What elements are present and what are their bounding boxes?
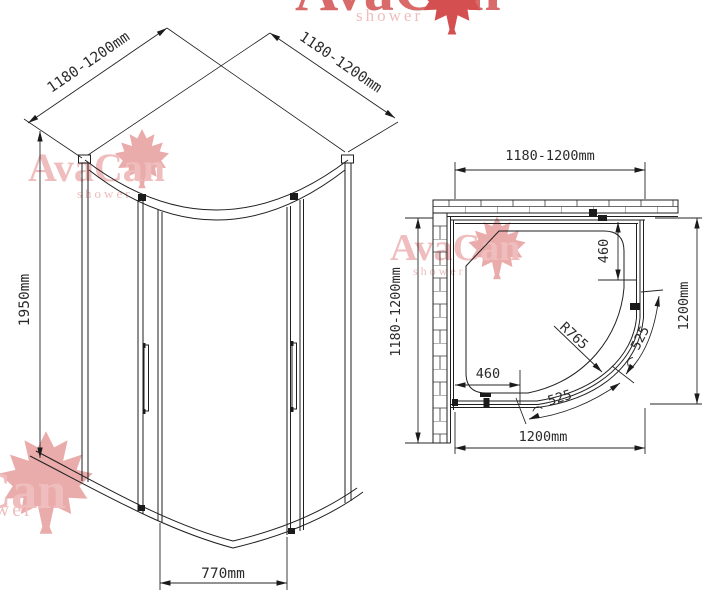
door-arc-inner bbox=[537, 318, 637, 401]
door-handle-right bbox=[291, 341, 297, 412]
dim-label: 525 bbox=[546, 387, 574, 409]
watermark-left-middle: AvaCan shower bbox=[28, 129, 169, 201]
dim-label: 460 bbox=[596, 239, 612, 263]
post-cap bbox=[342, 155, 354, 163]
roller-bracket bbox=[138, 194, 146, 201]
dim-label: 1180-1200mm bbox=[388, 267, 404, 356]
corner-fitting bbox=[452, 399, 458, 406]
isometric-view: 1180-1200mm 1180-1200mm 1950mm 770mm bbox=[17, 26, 398, 590]
dim-label: 770mm bbox=[201, 566, 245, 582]
panel-bracket bbox=[589, 209, 597, 216]
brand-watermark-text: AvaCan bbox=[28, 145, 165, 190]
dim-back-left-width: 1180-1200mm bbox=[26, 26, 168, 125]
dim-label: 1950mm bbox=[17, 274, 33, 327]
corner-posts bbox=[82, 163, 351, 503]
dim-plan-top-width: 1180-1200mm bbox=[455, 148, 645, 199]
brand-watermark-text: AvaCan bbox=[390, 227, 520, 269]
wall-top bbox=[433, 200, 678, 213]
dim-label: 460 bbox=[476, 366, 500, 382]
left-door-stiles bbox=[138, 200, 162, 523]
door-stop-bracket bbox=[630, 303, 640, 310]
right-door-stiles bbox=[287, 199, 304, 535]
fixed-panel-bottom bbox=[450, 401, 538, 408]
dim-label: 1180-1200mm bbox=[45, 29, 133, 97]
dim-door-opening: 770mm bbox=[160, 523, 287, 590]
dim-door-radius: R765 bbox=[554, 319, 604, 374]
arc-length-icon bbox=[532, 406, 542, 412]
dim-back-right-width: 1180-1200mm bbox=[268, 29, 396, 120]
watermark-bottom-left: AvaCan shower bbox=[0, 431, 93, 534]
technical-drawing-page: AvaCan shower AvaCan shower AvaCan showe… bbox=[0, 0, 719, 600]
dim-label: 1200mm bbox=[519, 429, 568, 445]
dim-label: 1180-1200mm bbox=[296, 29, 385, 96]
brand-watermark-tagline: shower bbox=[0, 499, 34, 521]
plan-view: 1180-1200mm 1180-1200mm 1200mm 1 bbox=[388, 148, 702, 454]
roller-bracket bbox=[290, 193, 298, 200]
dim-label: R765 bbox=[556, 319, 591, 353]
dim-label: 525 bbox=[628, 324, 653, 353]
dim-label: 1200mm bbox=[676, 282, 692, 331]
panel-bracket bbox=[484, 398, 490, 407]
panel-bracket bbox=[480, 393, 491, 398]
dim-label: 1180-1200mm bbox=[505, 148, 594, 164]
dim-plan-right-depth: 1200mm bbox=[650, 218, 702, 404]
watermark-top-center: AvaCan shower bbox=[295, 0, 501, 34]
shower-enclosure-drawing: AvaCan shower AvaCan shower AvaCan showe… bbox=[0, 0, 719, 600]
watermark-plan-view: AvaCan shower bbox=[390, 216, 526, 279]
base-rim-outer bbox=[30, 456, 363, 548]
brand-watermark-tagline: shower bbox=[356, 6, 423, 25]
panel-bracket bbox=[598, 215, 607, 221]
dim-door-arc-bottom: 525 bbox=[516, 381, 622, 424]
wall-left bbox=[433, 213, 447, 443]
dim-plan-bottom-width: 1200mm bbox=[455, 408, 645, 454]
